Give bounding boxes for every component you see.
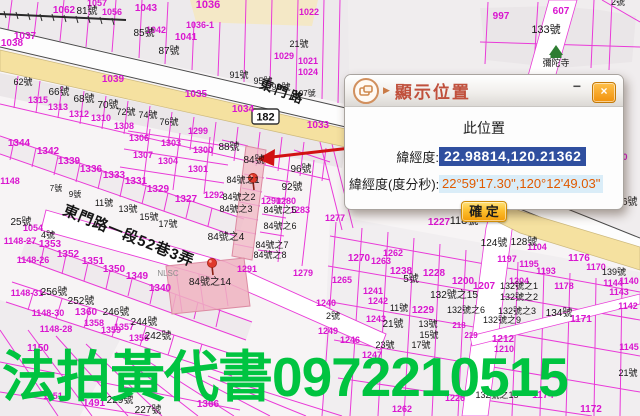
map-label: 132號之15 [475,389,518,400]
map-label: 997 [493,11,510,22]
map-label: 1056 [102,7,122,17]
dms-row: 緯經度(度分秒): 22°59'17.30",120°12'49.03" [349,174,619,193]
map-label: 1226 [445,393,465,403]
map-label: 13號 [418,318,437,329]
map-label: 1178 [554,281,574,291]
map-label: 1148-26 [17,255,50,265]
map-label: 218 [452,321,466,330]
map-label: 1366 [197,399,220,410]
map-label: 1249 [318,326,338,336]
map-label: 1228 [423,268,446,279]
map-label: 1197 [497,254,517,264]
map-label: 244號 [131,315,158,328]
map-label: 15號 [139,211,158,222]
map-label: 1277 [325,213,345,223]
map-label: 1310 [91,113,111,123]
map-label: 1306 [129,133,149,143]
map-label: 68號 [73,92,94,105]
map-label: 132號之9 [483,314,521,325]
map-label: 1148 [0,176,20,186]
map-label: 1200 [452,276,475,287]
map-label: 1041 [175,32,198,43]
map-label: 1491 [83,398,106,409]
map-label: 1340 [149,283,172,294]
map-label: 1351 [82,256,105,267]
map-label: 1242 [368,296,388,306]
map-label: 1034 [232,104,255,115]
map-label: 1150 [27,343,49,354]
map-label: 72號 [116,106,135,117]
map-label: 132號之6 [447,304,485,315]
map-label: 1035 [185,89,208,100]
map-label: 1300 [193,145,213,155]
map-label: 1148-30 [32,308,65,318]
map-label: 1143 [609,287,629,297]
map-label: 227號 [135,403,162,416]
map-label: 1043 [135,3,158,14]
map-label: 15號 [419,329,438,340]
map-label: 1148-27 [4,236,37,246]
map-label: 1352 [57,249,80,260]
map-label: 5號 [403,272,419,285]
svg-text:182: 182 [256,112,274,124]
map-label: 62號 [13,76,32,87]
map-label: 1291 [237,264,257,274]
map-page: { "dialog": { "title": "顯示位置", "minimize… [0,0,640,416]
map-label: 1344 [8,138,31,149]
map-label: 1333 [103,170,126,181]
map-label: 1145 [619,342,639,352]
latlng-value[interactable]: 22.98814,120.21362 [439,147,586,166]
dialog-title: 顯示位置 [395,78,471,103]
map-label: 1349 [126,271,149,282]
map-label: 1241 [363,286,383,296]
map-label: 1039 [102,74,125,85]
map-label: 132號之15 [430,288,478,301]
map-label: 85號 [133,26,154,39]
map-label: 4號 [41,229,55,240]
map-label: 7號 [50,183,62,193]
map-label: 1172 [580,404,602,415]
map-label: 21號 [289,38,308,49]
map-label: 219 [464,331,478,340]
map-label: 1339 [58,156,81,167]
map-label: 1247 [362,350,382,360]
map-label: 21號 [382,317,403,330]
map-label: 1299 [188,126,208,136]
map-label: 1210 [494,344,514,354]
map-label: 1360 [75,307,98,318]
map-label: 229號 [107,393,134,406]
map-label: 84號之6 [263,220,296,231]
map-label: 607 [553,6,570,17]
map-label: 242號 [145,329,172,342]
map-label: 1307 [133,150,153,160]
map-label: 124號 [481,236,508,249]
map-label: 132號之1 [500,280,538,291]
map-label: 1142 [618,301,638,311]
map-label: 1229 [412,305,435,316]
map-label: 1171 [570,314,592,325]
location-window-icon [353,78,379,104]
map-label: 84號 [243,153,264,166]
dms-label: 緯經度(度分秒): [349,174,439,193]
map-label: 76號 [159,116,178,127]
map-label: 1029 [274,51,294,61]
map-label: 91號 [229,69,248,80]
map-label: 1036-1 [186,20,214,30]
map-label: 1024 [298,67,318,77]
map-label: 134號 [546,306,573,319]
map-label: 13號 [118,203,137,214]
road-shield: 182 [252,109,279,124]
map-label: 128號 [511,235,538,248]
map-label: 81號 [76,4,97,17]
map-label: 88號 [218,140,239,153]
map-label: 1313 [48,102,68,112]
dms-value: 22°59'17.30",120°12'49.03" [439,175,603,193]
map-label: 139號 [602,266,626,277]
map-label: 11號 [95,197,113,208]
map-label: 11號 [390,302,408,313]
map-label: 84號之8 [253,249,286,260]
map-label: 84號之3 [219,203,252,214]
map-label: 1265 [332,275,352,285]
map-label: 1312 [69,109,89,119]
map-label: 256號 [41,285,68,298]
map-label: 彌陀寺 [542,57,569,68]
map-label: 84號之7 [255,239,288,250]
map-label: 1301 [188,164,208,174]
map-label: 92號 [281,180,302,193]
map-label: 1331 [125,176,148,187]
map-label: 1336 [80,164,103,175]
caret-icon: ▶ [383,85,390,96]
dialog-titlebar[interactable]: ▶ 顯示位置 − × [345,75,623,107]
map-label: 133號 [531,23,560,36]
map-label: 1022 [299,7,319,17]
dialog-body: 此位置 緯經度: 22.98814,120.21362 緯經度(度分秒): 22… [345,107,623,222]
map-label: 1315 [28,95,48,105]
map-label: 1174 [532,390,554,401]
latlng-row: 緯經度: 22.98814,120.21362 [349,147,619,166]
map-label: 66號 [48,85,69,98]
map-label: 25號 [10,215,31,228]
map-label: 1151-1 [43,391,71,401]
map-label: 1308 [114,121,134,131]
map-label: 9號 [69,189,81,199]
map-label: 1327 [175,194,198,205]
map-label: NLSC [157,269,179,278]
map-label: 1240 [316,298,336,308]
map-label: 1038 [1,38,24,49]
map-label: 84號之4 [208,230,245,243]
map-label: 252號 [68,294,95,307]
map-label: 21號 [618,367,637,378]
map-label: 84號之14 [189,275,232,288]
map-label: 23號 [375,339,394,350]
minimize-button[interactable]: − [569,79,585,95]
map-label: 1292 [204,190,224,200]
map-label: 2號 [326,310,340,321]
map-label: 1350 [103,264,126,275]
map-label: 1270 [348,253,371,264]
map-label: 1262 [392,404,412,414]
map-label: 1148-31 [11,288,44,298]
map-label: 1279 [293,268,313,278]
map-label: 2號 [611,0,625,7]
map-label: 84號之1 [226,174,259,185]
map-label: 246號 [103,305,130,318]
map-label: 96號 [290,162,311,175]
map-label: 84號之2 [222,191,255,202]
map-label: 1193 [536,266,556,276]
map-label: 1062 [53,5,76,16]
map-label: 1262 [383,248,403,258]
confirm-button[interactable]: 確 定 [461,201,507,222]
map-label: 87號 [158,44,179,57]
map-label: 1304 [158,156,178,166]
map-label: 1021 [298,56,318,66]
latlng-label: 緯經度: [349,147,439,166]
map-label: 84號之5 [263,204,296,215]
map-label: 17號 [411,339,430,350]
map-label: 1033 [307,120,330,131]
map-label: 17號 [158,218,177,229]
map-label: 1036 [196,0,220,11]
map-label: 1329 [147,184,170,195]
map-label: 1148-28 [40,324,73,334]
map-label: 1246 [340,335,360,345]
map-label: 70號 [97,98,118,111]
map-label: 132號之2 [500,291,538,302]
map-label: 74號 [138,109,157,120]
section-title: 此位置 [349,118,619,138]
map-label: 1140 [619,276,639,286]
close-button[interactable]: × [592,82,616,103]
show-location-dialog: ▶ 顯示位置 − × 此位置 緯經度: 22.98814,120.21362 緯… [344,74,624,210]
map-label: 1303 [161,138,181,148]
map-label: 1342 [37,146,60,157]
